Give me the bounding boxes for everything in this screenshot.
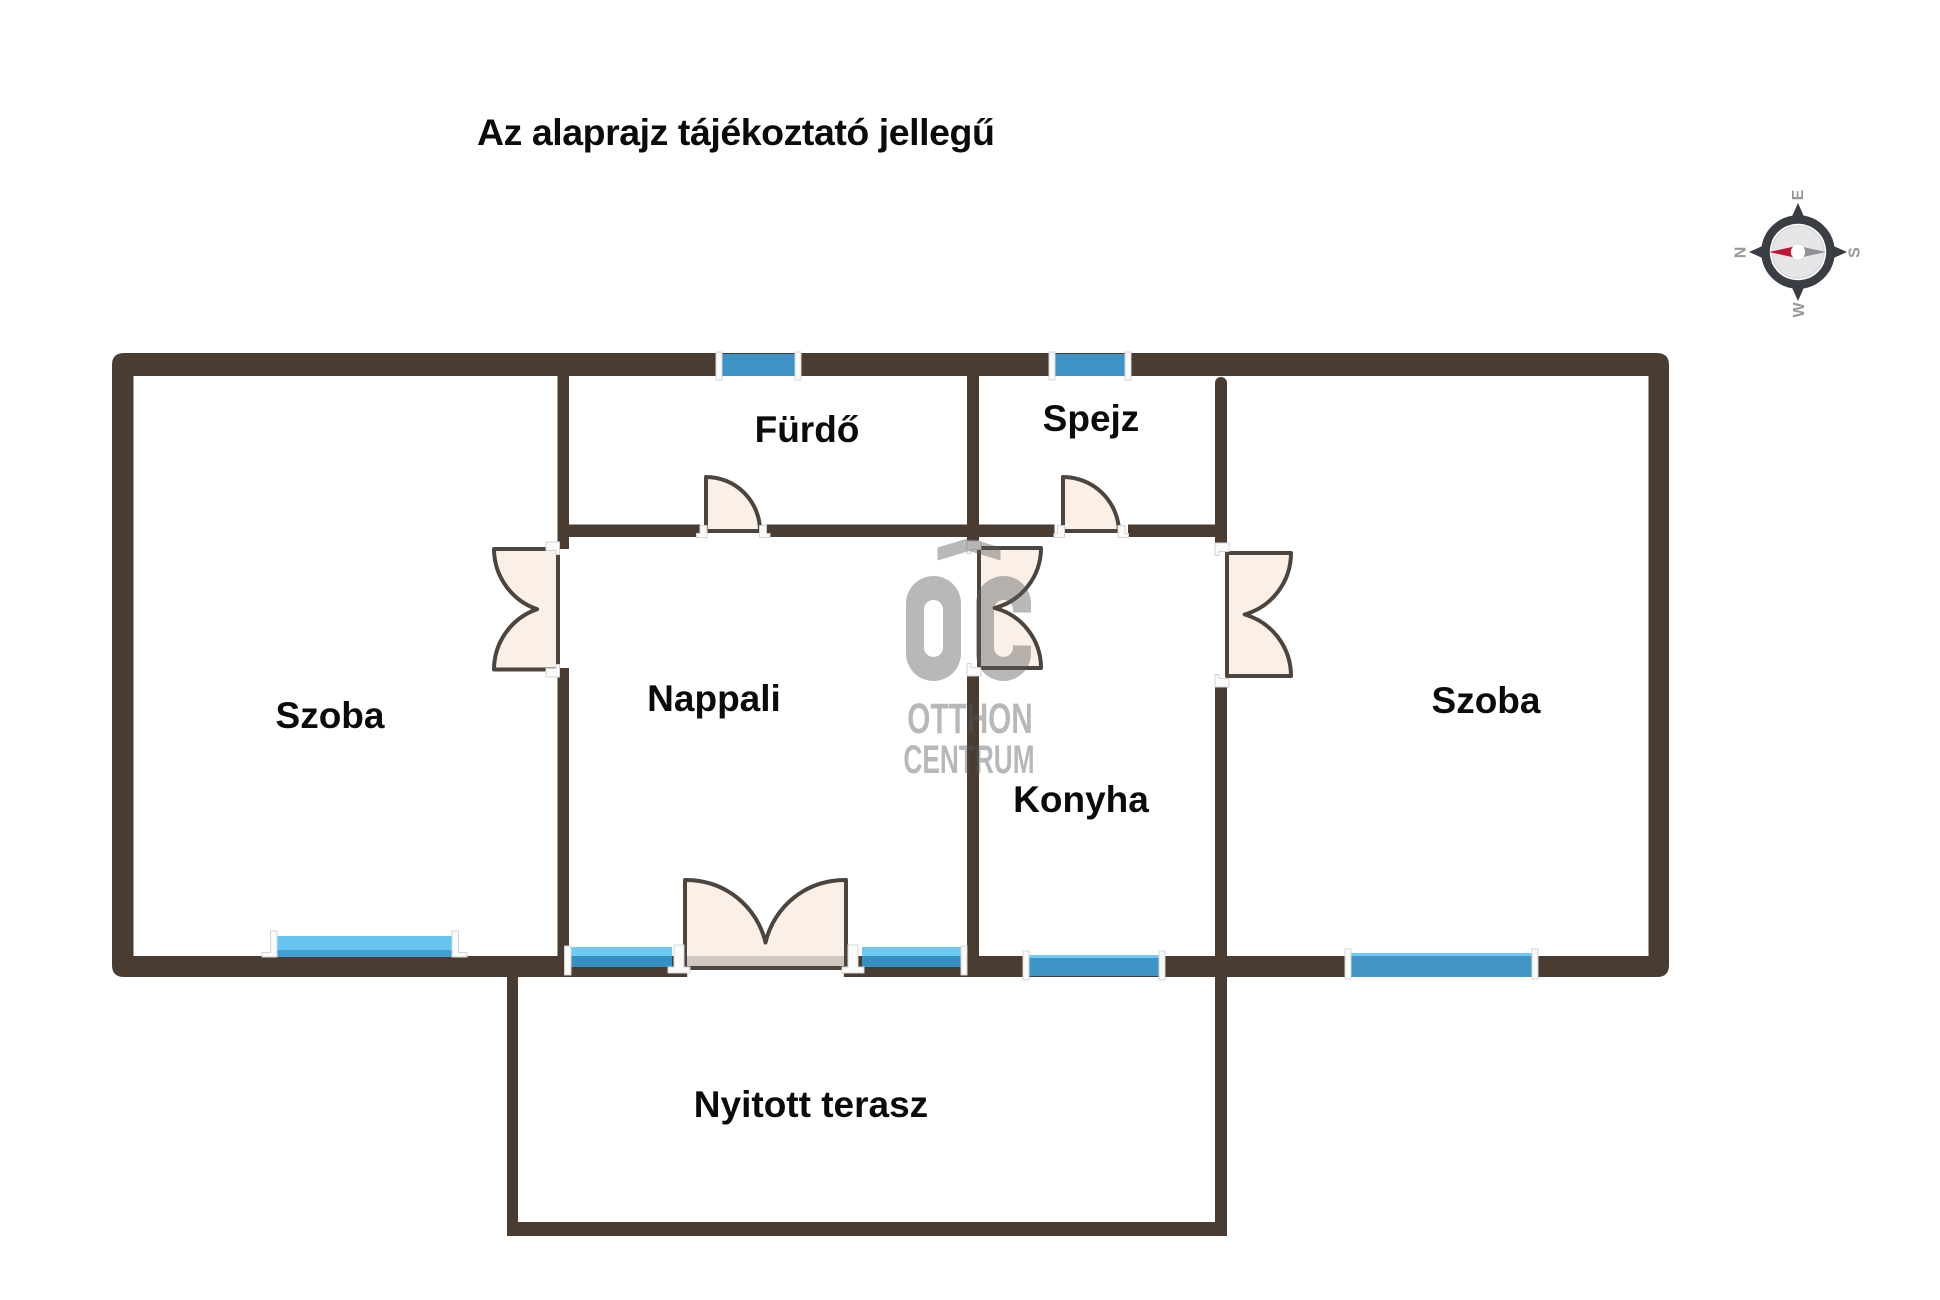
svg-text:Szoba: Szoba bbox=[1432, 680, 1541, 721]
svg-text:Nyitott terasz: Nyitott terasz bbox=[694, 1084, 928, 1125]
svg-text:S: S bbox=[1847, 247, 1864, 258]
svg-text:E: E bbox=[1790, 189, 1807, 200]
svg-text:W: W bbox=[1791, 302, 1808, 318]
svg-text:Szoba: Szoba bbox=[276, 695, 385, 736]
svg-text:Nappali: Nappali bbox=[647, 678, 781, 719]
svg-text:CENTRUM: CENTRUM bbox=[903, 738, 1034, 783]
svg-text:N: N bbox=[1733, 247, 1750, 259]
svg-text:Spejz: Spejz bbox=[1043, 398, 1140, 439]
svg-text:OTTHON: OTTHON bbox=[907, 695, 1033, 743]
svg-text:Fürdő: Fürdő bbox=[755, 409, 860, 450]
svg-text:Konyha: Konyha bbox=[1013, 779, 1149, 820]
svg-text:Az alaprajz tájékoztató jelleg: Az alaprajz tájékoztató jellegű bbox=[477, 111, 994, 153]
